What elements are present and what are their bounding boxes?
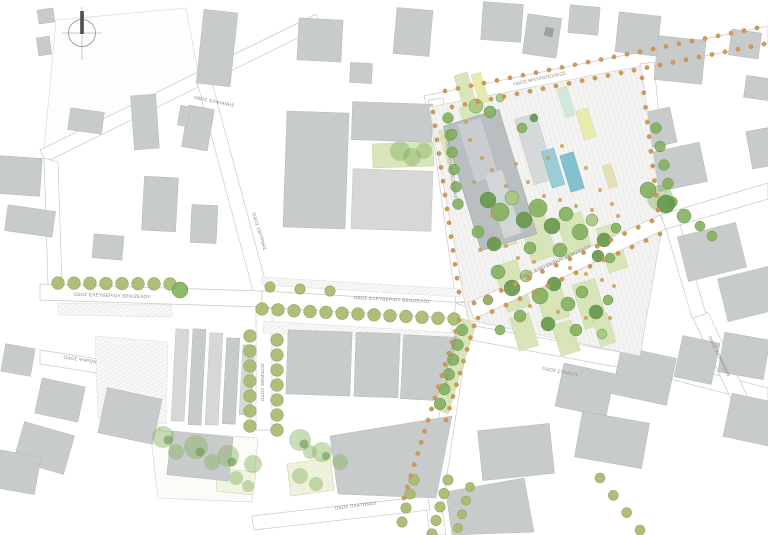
tree (651, 123, 662, 134)
building (0, 156, 42, 197)
orange-dot (560, 277, 564, 281)
tree (447, 129, 457, 139)
orange-dot (656, 208, 660, 212)
tree (611, 223, 621, 233)
orange-dot (574, 204, 578, 208)
tree (559, 207, 573, 221)
street-tree (457, 510, 466, 519)
tree (443, 113, 454, 124)
orange-dot (480, 156, 484, 160)
tree-cluster (244, 455, 262, 473)
orange-dot (630, 245, 634, 249)
building (171, 329, 189, 422)
orange-dot (595, 244, 599, 248)
orange-dot (458, 371, 462, 375)
orange-dot (433, 396, 437, 400)
street-tree (401, 503, 411, 513)
orange-dot (716, 34, 720, 38)
orange-dot (654, 193, 658, 197)
orange-dot (573, 63, 577, 67)
orange-dot (625, 52, 629, 56)
orange-dot (436, 385, 440, 389)
orange-dot (450, 105, 454, 109)
orange-dot (586, 60, 590, 64)
street-tree (271, 409, 284, 422)
orange-dot (588, 264, 592, 268)
orange-dot (677, 42, 681, 46)
building (746, 127, 768, 169)
orange-dot (671, 60, 675, 64)
orange-dot (632, 68, 636, 72)
orange-dot (736, 47, 740, 51)
orange-dot (560, 144, 564, 148)
orange-dot (546, 283, 550, 287)
orange-dot (468, 336, 472, 340)
street-tree (68, 277, 81, 290)
orange-dot (580, 79, 584, 83)
orange-dot (645, 120, 649, 124)
orange-dot (606, 73, 610, 77)
tree (484, 106, 496, 118)
street-tree (432, 312, 445, 325)
orange-dot (568, 266, 572, 270)
orange-dot (616, 214, 620, 218)
orange-dot (443, 193, 447, 197)
street-tree (336, 307, 349, 320)
street-tree (132, 277, 145, 290)
tree (695, 221, 705, 231)
orange-dot (457, 318, 461, 322)
orange-dot (528, 304, 532, 308)
orange-dot (504, 184, 508, 188)
orange-dot (723, 50, 727, 54)
tree-cluster (184, 435, 208, 459)
street-tree (453, 523, 462, 532)
orange-dot (518, 296, 522, 300)
parking-strip (58, 303, 172, 317)
building (522, 14, 561, 58)
orange-dot (476, 316, 480, 320)
orange-dot (650, 219, 654, 223)
orange-dot (742, 28, 746, 32)
tree (472, 226, 484, 238)
building (393, 8, 433, 57)
building (728, 29, 761, 59)
orange-dot (622, 231, 626, 235)
orange-dot (546, 156, 550, 160)
orange-dot (649, 149, 653, 153)
orange-dot (690, 39, 694, 43)
tree (172, 282, 188, 298)
orange-dot (478, 248, 482, 252)
building (190, 204, 218, 243)
tree (524, 242, 536, 254)
building (196, 9, 238, 86)
tree (453, 199, 464, 210)
tree-cluster (164, 436, 173, 445)
tree (516, 212, 532, 228)
building (717, 266, 768, 321)
street-tree (244, 405, 257, 418)
orange-dot (684, 58, 688, 62)
orange-dot (650, 164, 654, 168)
orange-dot (610, 202, 614, 206)
orange-dot (464, 120, 468, 124)
orange-dot (643, 105, 647, 109)
tree (541, 317, 555, 331)
orange-dot (710, 52, 714, 56)
street-tree (265, 282, 275, 292)
orange-dot (584, 316, 588, 320)
orange-dot (437, 151, 441, 155)
orange-dot (528, 89, 532, 93)
street-tree (368, 309, 381, 322)
building (351, 169, 433, 232)
street-tree (465, 482, 474, 491)
orange-dot (447, 221, 451, 225)
tree-cluster (322, 452, 330, 460)
orange-dot (508, 76, 512, 80)
orange-dot (599, 57, 603, 61)
building (351, 102, 432, 143)
orange-dot (612, 284, 616, 288)
orange-dot (755, 26, 759, 30)
street-tree (256, 303, 269, 316)
tree (586, 214, 598, 226)
tree-cluster (229, 471, 243, 485)
orange-dot (574, 271, 578, 275)
site-plan-page: ΟΔΟΣ ΣΟΦΙΑΝΗΣ ΟΔΟΣ ΕΛΕΥΘΕΡΙΟΥ ΒΕΝΙΖΕΛΟΥ … (0, 0, 768, 535)
street-tree (244, 345, 257, 358)
street-tree (244, 390, 257, 403)
orange-dot (453, 262, 457, 266)
tree (504, 280, 520, 296)
tree (491, 203, 509, 221)
building (297, 18, 343, 62)
orange-dot (547, 68, 551, 72)
orange-dot (454, 383, 458, 387)
orange-dot (457, 290, 461, 294)
tree (576, 286, 588, 298)
orange-dot (472, 301, 476, 305)
orange-dot (584, 272, 588, 276)
tree (514, 310, 526, 322)
tree (589, 305, 603, 319)
street-tree (244, 420, 257, 433)
street-tree (352, 308, 365, 321)
orange-dot (447, 406, 451, 410)
orange-dot (651, 47, 655, 51)
building (1, 344, 35, 377)
orange-dot (513, 282, 517, 286)
orange-dot (762, 42, 766, 46)
orange-dot (560, 65, 564, 69)
building (35, 378, 86, 422)
orange-dot (598, 188, 602, 192)
street-venizelou-east (660, 183, 768, 229)
tree (570, 324, 582, 336)
orange-dot (516, 256, 520, 260)
orange-dot (534, 70, 538, 74)
tree (640, 182, 656, 198)
orange-dot (541, 86, 545, 90)
street-tree (416, 311, 429, 324)
orange-dot (476, 100, 480, 104)
street-tree (271, 394, 284, 407)
street-tree (384, 309, 397, 322)
building (330, 416, 452, 498)
orange-dot (697, 55, 701, 59)
orange-dot (554, 84, 558, 88)
tree-cluster (228, 458, 237, 467)
orange-dot (449, 234, 453, 238)
orange-dot (608, 316, 612, 320)
street-tree (116, 277, 129, 290)
building (568, 5, 600, 36)
orange-dot (532, 290, 536, 294)
building (68, 108, 105, 135)
orange-dot (495, 78, 499, 82)
street-tree (622, 508, 632, 518)
street-tree (244, 375, 257, 388)
orange-dot (472, 180, 476, 184)
tree (517, 123, 527, 133)
orange-dot (644, 238, 648, 242)
orange-dot (749, 44, 753, 48)
building (478, 423, 555, 480)
orange-dot (468, 138, 472, 142)
orange-dot (431, 110, 435, 114)
tree (495, 325, 505, 335)
street-tree (271, 349, 284, 362)
masterplan-drawing: ΟΔΟΣ ΣΟΦΙΑΝΗΣ ΟΔΟΣ ΕΛΕΥΘΕΡΙΟΥ ΒΕΝΙΖΕΛΟΥ … (0, 0, 768, 535)
building (612, 347, 677, 406)
building (222, 338, 239, 425)
street-tree (397, 517, 407, 527)
street-tree (461, 496, 470, 505)
tree-cluster (242, 480, 254, 492)
tree (529, 199, 547, 217)
street-tree (244, 360, 257, 373)
tree (544, 218, 560, 234)
tree (487, 237, 501, 251)
tree (597, 329, 607, 339)
tree (605, 253, 615, 263)
orange-dot (433, 124, 437, 128)
building (131, 94, 160, 150)
street-tree (52, 277, 65, 290)
tree-cluster (332, 454, 348, 470)
tree (707, 231, 717, 241)
street-tree (148, 278, 161, 291)
street-tree (288, 304, 301, 317)
orange-dot (443, 89, 447, 93)
orange-dot (422, 429, 426, 433)
orange-dot (439, 165, 443, 169)
street-tree (295, 284, 305, 294)
building (36, 36, 51, 56)
orange-dot (429, 407, 433, 411)
street-tree (272, 304, 285, 317)
orange-dot (456, 86, 460, 90)
street-tree (244, 330, 257, 343)
street-tree (271, 334, 284, 347)
orange-dot (521, 73, 525, 77)
street-tree (84, 277, 97, 290)
building (205, 333, 223, 426)
compass-needle-icon (80, 11, 84, 34)
orange-dot (409, 474, 413, 478)
orange-dot (556, 310, 560, 314)
orange-dot (590, 208, 594, 212)
building (481, 2, 524, 43)
orange-dot (703, 36, 707, 40)
tree (561, 297, 575, 311)
orange-dot (489, 97, 493, 101)
tree (530, 114, 538, 122)
tree (677, 209, 691, 223)
street-tree (271, 424, 284, 437)
building (37, 8, 55, 24)
orange-dot (451, 394, 455, 398)
building (744, 75, 768, 100)
orange-dot (647, 134, 651, 138)
orange-dot (444, 418, 448, 422)
orange-dot (645, 65, 649, 69)
orange-dot (419, 440, 423, 444)
orange-dot (658, 63, 662, 67)
street-tree (595, 473, 605, 483)
tree-cluster (196, 448, 205, 457)
tree-cluster (168, 444, 184, 460)
street-tree (400, 310, 413, 323)
orange-dot (482, 81, 486, 85)
tree (572, 224, 588, 240)
building (575, 411, 650, 468)
orange-dot (490, 309, 494, 313)
orange-dot (612, 55, 616, 59)
orange-dot (638, 49, 642, 53)
orange-dot (636, 225, 640, 229)
orange-dot (504, 303, 508, 307)
street-label-themidos: ΟΔΟΣ ΘΕΜΙΔΟΣ (260, 363, 265, 401)
building (723, 393, 768, 446)
orange-dot (542, 194, 546, 198)
street-tree (320, 306, 333, 319)
orange-dot (435, 137, 439, 141)
tree (659, 160, 670, 171)
orange-dot (515, 92, 519, 96)
tree-cluster (204, 454, 220, 470)
orange-dot (593, 76, 597, 80)
tree (491, 265, 505, 279)
street-tree (439, 488, 449, 498)
orange-dot (441, 179, 445, 183)
orange-dot (602, 258, 606, 262)
orange-dot (445, 207, 449, 211)
orange-dot (616, 251, 620, 255)
street-tree (100, 277, 113, 290)
street-tree (431, 515, 441, 525)
street-tree (635, 525, 645, 535)
park-block-top-left (44, 8, 200, 150)
tree (505, 191, 519, 205)
building (544, 27, 554, 37)
street-tree (443, 475, 453, 485)
orange-dot (652, 178, 656, 182)
orange-dot (402, 496, 406, 500)
street-tree (405, 489, 415, 499)
orange-dot (426, 418, 430, 422)
orange-dot (658, 232, 662, 236)
orange-dot (558, 198, 562, 202)
orange-dot (472, 324, 476, 328)
tree-cluster (416, 143, 432, 159)
building (142, 176, 179, 232)
orange-dot (451, 248, 455, 252)
orange-dot (584, 166, 588, 170)
street-tree (304, 305, 317, 318)
orange-dot (461, 359, 465, 363)
building (0, 449, 41, 494)
orange-dot (485, 294, 489, 298)
orange-dot (469, 84, 473, 88)
orange-dot (405, 485, 409, 489)
orange-dot (412, 462, 416, 466)
orange-dot (640, 76, 644, 80)
building (349, 62, 372, 83)
orange-dot (490, 168, 494, 172)
orange-dot (729, 31, 733, 35)
tree (663, 178, 674, 189)
building (354, 332, 400, 397)
orange-dot (465, 347, 469, 351)
building (188, 329, 206, 426)
orange-dot (490, 214, 494, 218)
orange-dot (504, 244, 508, 248)
building (286, 330, 352, 396)
tree (655, 141, 666, 152)
orange-dot (526, 180, 530, 184)
street-tree (271, 364, 284, 377)
orange-dot (499, 288, 503, 292)
orange-dot (600, 278, 604, 282)
tree-cluster (309, 477, 323, 491)
orange-dot (502, 94, 506, 98)
orange-dot (567, 81, 571, 85)
orange-dot (609, 238, 613, 242)
building (92, 234, 124, 261)
orange-dot (514, 162, 518, 166)
street-tree (435, 502, 445, 512)
orange-dot (619, 71, 623, 75)
tree-cluster (300, 440, 309, 449)
orange-dot (455, 276, 459, 280)
orange-dot (532, 260, 536, 264)
tree-cluster (292, 468, 308, 484)
tree (603, 295, 613, 305)
orange-dot (664, 44, 668, 48)
orange-dot (642, 90, 646, 94)
street-tree (271, 379, 284, 392)
building (283, 111, 349, 229)
orange-dot (463, 102, 467, 106)
orange-dot (416, 451, 420, 455)
street-tree (608, 490, 618, 500)
street-tree (325, 286, 335, 296)
